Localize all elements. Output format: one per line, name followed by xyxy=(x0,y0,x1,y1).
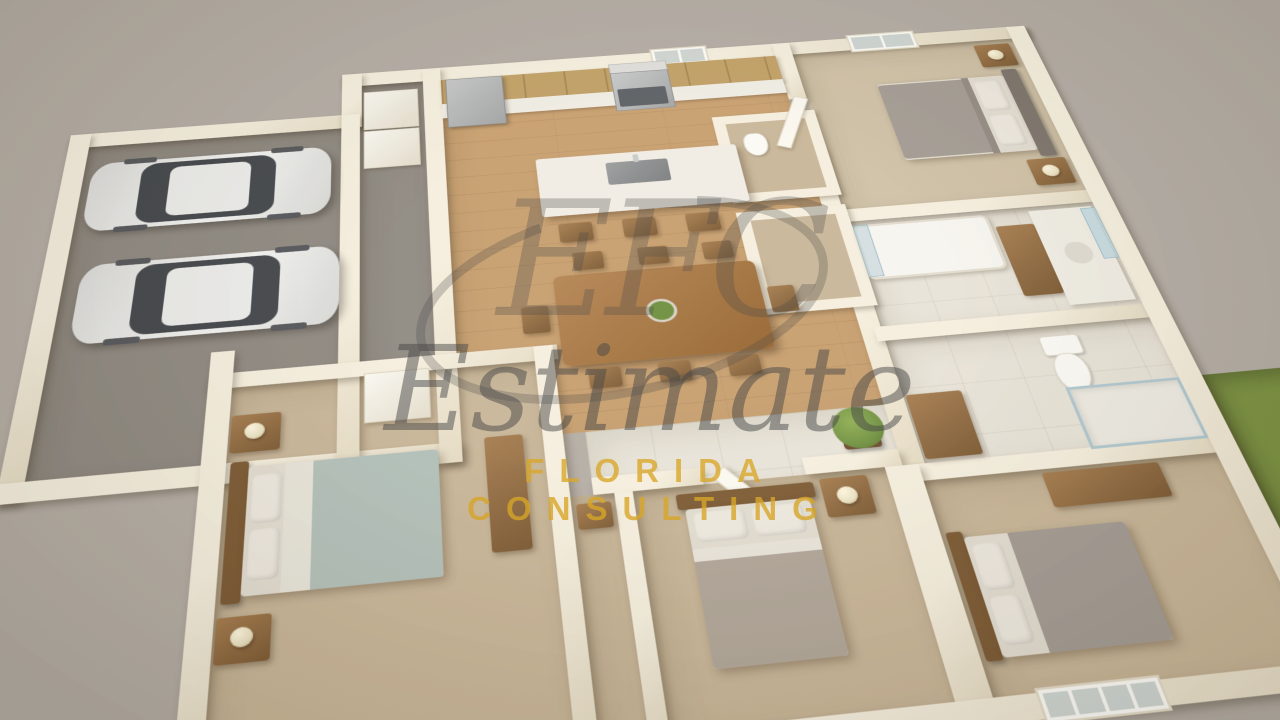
render-stage: EFC Estimate FLORIDA CONSULTING xyxy=(0,0,1280,720)
window-pane xyxy=(1129,681,1164,708)
screenshot-root: { "scene": { "type": "3d-floor-plan-rend… xyxy=(0,0,1280,720)
window-pane xyxy=(679,48,705,62)
washer xyxy=(364,89,420,131)
window-pane xyxy=(1042,691,1076,718)
range-oven xyxy=(610,69,676,111)
car-1-wheel xyxy=(271,146,303,153)
faucet xyxy=(632,154,639,162)
window-pane xyxy=(881,33,914,47)
sheet-fold xyxy=(280,461,313,593)
refrigerator xyxy=(445,76,507,128)
car-1-roof xyxy=(165,161,252,216)
bedroom-2-bed xyxy=(240,449,443,597)
dining-chair xyxy=(521,305,551,334)
dryer xyxy=(364,127,421,169)
cooktop xyxy=(617,86,669,107)
garage-utility-wall xyxy=(336,114,360,474)
bar-stool xyxy=(558,222,594,243)
pillow xyxy=(250,473,283,524)
dining-chair xyxy=(701,240,735,260)
table-centerpiece-plant xyxy=(648,300,676,321)
dining-chair xyxy=(588,366,623,389)
bedroom-2-blanket xyxy=(307,449,443,590)
bar-stool xyxy=(622,217,659,238)
dining-chair xyxy=(657,360,693,383)
closet-shelf xyxy=(576,501,614,530)
car-1-wheel xyxy=(124,157,157,165)
dining-chair xyxy=(572,251,605,271)
bedroom-3-blanket xyxy=(694,547,849,669)
pillow xyxy=(751,502,809,537)
window-pane xyxy=(1101,684,1135,711)
island-sink xyxy=(605,158,671,185)
pillow xyxy=(246,527,280,581)
floor-plan-3d xyxy=(0,3,1280,720)
bar-stool xyxy=(685,212,722,233)
toilet xyxy=(741,132,771,156)
dining-chair xyxy=(726,354,762,377)
dining-chair xyxy=(637,245,670,265)
car-2-roof xyxy=(161,262,255,327)
window-pane xyxy=(1072,688,1106,715)
pillow xyxy=(693,508,750,543)
window-pane xyxy=(850,36,883,50)
water-heater xyxy=(364,368,431,424)
dining-table xyxy=(553,260,776,367)
vanity-sink xyxy=(1060,241,1097,265)
